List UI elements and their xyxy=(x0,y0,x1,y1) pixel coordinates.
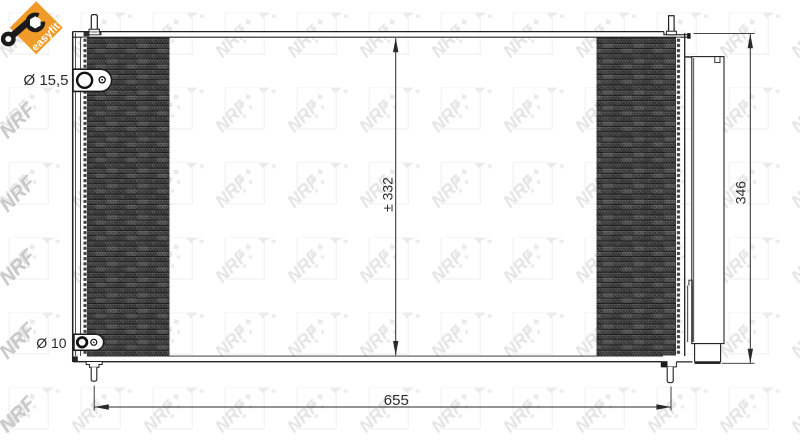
svg-text:655: 655 xyxy=(384,392,409,409)
svg-text:Ø 15,5: Ø 15,5 xyxy=(24,72,69,89)
svg-text:Ø 10: Ø 10 xyxy=(36,335,67,351)
svg-text:346: 346 xyxy=(732,181,748,205)
svg-text:± 332: ± 332 xyxy=(380,177,396,212)
